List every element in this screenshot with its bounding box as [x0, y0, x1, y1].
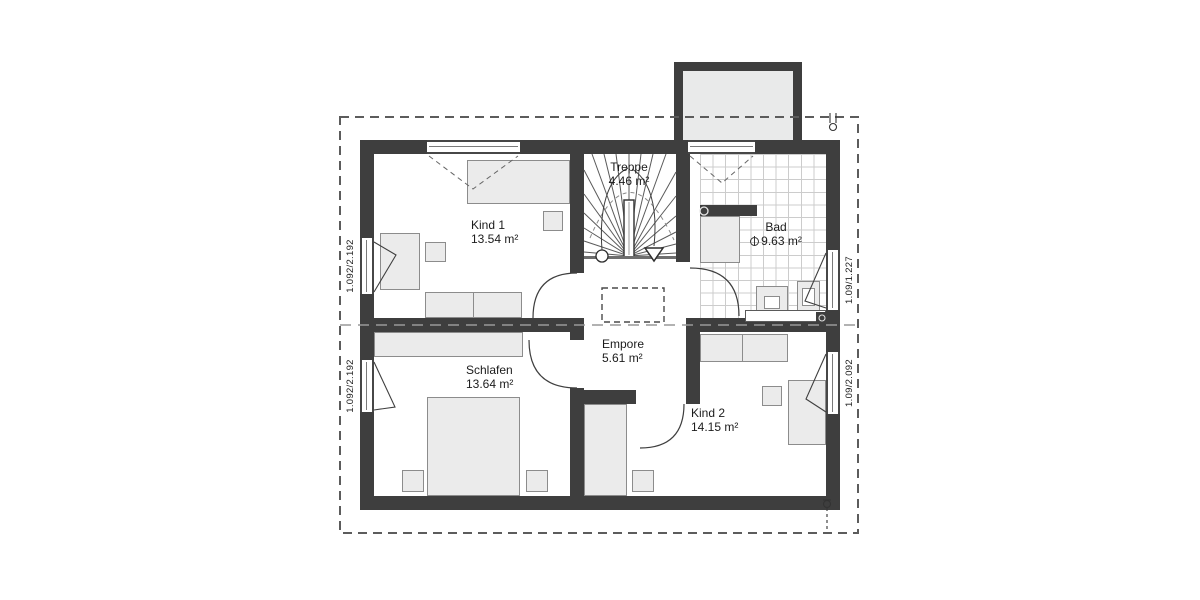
kind1-chair [425, 242, 446, 262]
room-label-empore: Empore 5.61 m² [602, 337, 644, 365]
bad-wc-bowl [764, 296, 780, 309]
kind1-bed [467, 160, 570, 204]
room-area: 13.54 m² [471, 232, 518, 246]
floor-plan: Treppe 4.46 m² Kind 1 13.54 m² Bad 9.63 … [0, 0, 1200, 600]
dormer-wall-left [674, 62, 683, 142]
kind2-wardrobe [584, 404, 627, 496]
window-kind1-top [427, 140, 520, 154]
room-area: 13.64 m² [466, 377, 513, 391]
room-area: 14.15 m² [691, 420, 738, 434]
kind2-sideboard-divider [742, 335, 743, 361]
wall-kind1-stair [570, 154, 584, 273]
room-name: Schlafen [466, 363, 513, 377]
wall-right [826, 140, 840, 510]
window-dormer [688, 140, 755, 154]
shower-partition-wall [700, 205, 757, 216]
kind2-sideboard [700, 334, 788, 362]
bad-counter-slab [745, 310, 826, 322]
drainpipe-symbol-top [830, 113, 837, 131]
room-area: 5.61 m² [602, 351, 644, 365]
door-swing-kind2 [640, 404, 684, 448]
window-bad-right [826, 250, 840, 310]
dim-label-left-bottom: 1.092/2.192 [345, 346, 357, 426]
room-name: Treppe [610, 160, 648, 174]
plan-lines-overlay [0, 0, 1200, 600]
wall-left [360, 140, 374, 510]
dormer-wall-right [793, 62, 802, 142]
room-area: 9.63 m² [761, 234, 802, 248]
stair-tread-dashed-arc [590, 192, 674, 240]
room-label-treppe: Treppe 4.46 m² [589, 160, 669, 188]
wall-schlafen-stub [570, 332, 584, 340]
schlafen-nightstand-left [402, 470, 424, 492]
bad-washbasin-bowl [802, 288, 815, 306]
room-label-schlafen: Schlafen 13.64 m² [466, 363, 513, 391]
kind2-bed [788, 380, 826, 445]
room-area: 4.46 m² [609, 174, 650, 188]
bad-drain-box [816, 312, 828, 324]
dim-label-left-top: 1.092/2.192 [345, 226, 357, 306]
schlafen-bed [427, 397, 520, 496]
kind2-chair [632, 470, 654, 492]
stair-start-marker-icon [596, 250, 608, 262]
room-label-bad: Bad 9.63 m² [740, 220, 812, 248]
kind1-desk [380, 233, 420, 290]
dim-label-right-bottom: 1.09/2.092 [844, 343, 856, 423]
wall-schlafen-kind2 [570, 388, 584, 496]
dim-label-right-top: 1.09/1.227 [844, 240, 856, 320]
dormer-interior [683, 71, 793, 140]
room-area-line: 9.63 m² [750, 234, 802, 248]
wall-empore-kind2 [686, 332, 700, 404]
room-name: Bad [765, 220, 786, 234]
schlafen-wardrobe [374, 332, 523, 357]
room-name: Empore [602, 337, 644, 351]
room-label-kind1: Kind 1 13.54 m² [471, 218, 518, 246]
wall-empore-bottom [584, 390, 636, 404]
room-name: Kind 2 [691, 406, 738, 420]
stair-spindle [624, 200, 634, 257]
wall-bottom [360, 496, 840, 510]
kind1-sofa-divider [473, 293, 474, 317]
window-schlafen-left [360, 360, 374, 412]
schlafen-nightstand-right [526, 470, 548, 492]
kind1-nightstand [543, 211, 563, 231]
door-swing-kind1 [533, 273, 577, 318]
kind2-nightstand [762, 386, 782, 406]
ceiling-opening-dashed [602, 288, 664, 322]
wall-stair-bad [676, 140, 690, 262]
window-kind2-right [826, 352, 840, 414]
dormer-wall-top [674, 62, 802, 71]
wall-middle-left [374, 318, 584, 332]
ceiling-fixture-icon [750, 237, 759, 246]
room-label-kind2: Kind 2 14.15 m² [691, 406, 738, 434]
door-swing-schlafen [529, 340, 577, 388]
sash-schlafen-left [374, 362, 395, 410]
bad-shower-tray [700, 216, 740, 263]
stair-direction-arrow-icon [645, 248, 663, 261]
window-kind1-left [360, 238, 374, 294]
room-name: Kind 1 [471, 218, 518, 232]
